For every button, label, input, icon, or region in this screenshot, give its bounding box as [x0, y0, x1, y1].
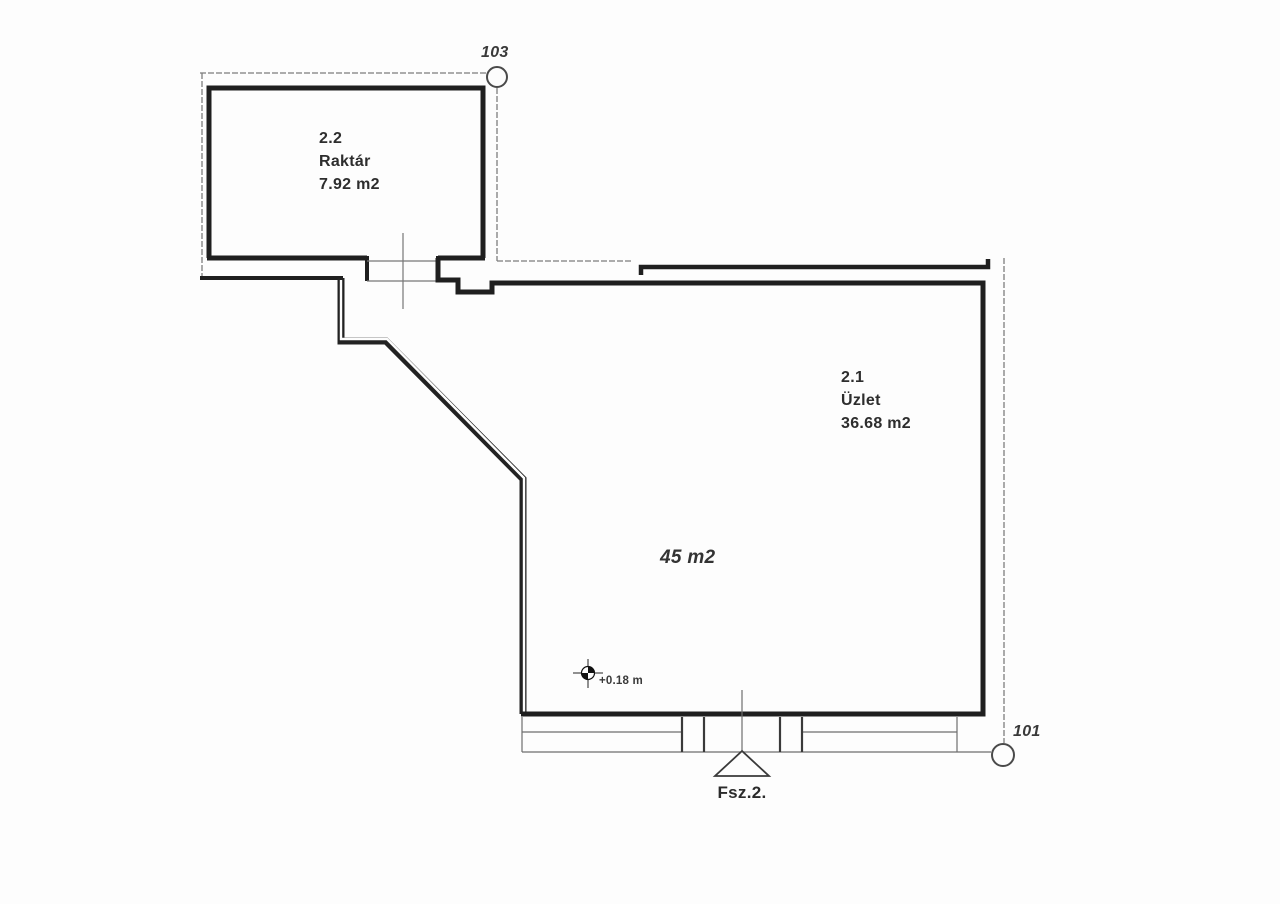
total-area-label: 45 m2: [660, 546, 715, 569]
room-raktar-label: 2.2 Raktár 7.92 m2: [319, 127, 380, 196]
room-raktar-area: 7.92 m2: [319, 173, 380, 196]
diagonal-wall-core: [341, 280, 524, 712]
room-uzlet-label: 2.1 Üzlet 36.68 m2: [841, 366, 911, 435]
entrance-label: Fsz.2.: [717, 781, 766, 804]
room-uzlet-area: 36.68 m2: [841, 412, 911, 435]
entrance-symbol: [715, 690, 769, 776]
benchmark-quadrant-ne: [588, 667, 595, 674]
survey-point-101-icon: [992, 744, 1014, 766]
room-raktar-number: 2.2: [319, 127, 380, 150]
entrance-arrow-icon: [715, 751, 769, 776]
room-uzlet-name: Üzlet: [841, 389, 911, 412]
neighbor-wall: [641, 259, 988, 275]
diagonal-wall-outer: [341, 278, 523, 714]
floorplan-drawing: [0, 0, 1280, 904]
storefront-band: [522, 717, 991, 752]
survey-point-103-label: 103: [481, 41, 509, 64]
west-wall-and-diagonal: [200, 278, 524, 714]
survey-point-103-icon: [487, 67, 507, 87]
benchmark-quadrant-sw: [582, 673, 589, 680]
floorplan-page: 103 101 2.2 Raktár 7.92 m2 2.1 Üzlet 36.…: [0, 0, 1280, 904]
room-raktar-name: Raktár: [319, 150, 380, 173]
room-uzlet-number: 2.1: [841, 366, 911, 389]
neighbor-wall-segment: [641, 259, 988, 275]
survey-point-101-label: 101: [1013, 720, 1041, 743]
survey-point-markers: [487, 67, 1014, 766]
raktar-door-opening: [367, 233, 438, 309]
benchmark-elevation-label: +0.18 m: [599, 670, 643, 693]
